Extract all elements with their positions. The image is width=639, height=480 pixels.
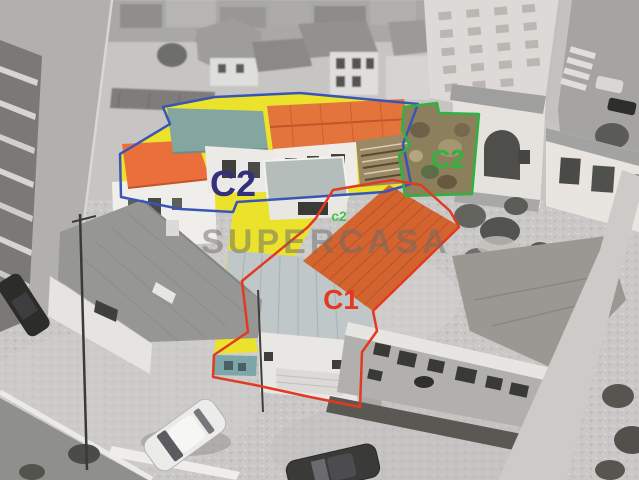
aerial-photo-canvas: C2 C2 c2 C1 SUPERCASA	[0, 0, 639, 480]
arch-opening	[484, 130, 520, 180]
parcel-label-c2-ruin: C2	[431, 144, 464, 174]
parcel-label-c2-main: C2	[210, 163, 256, 204]
parcel-label-c2-marker: c2	[331, 208, 347, 224]
parcel-label-c1: C1	[323, 284, 359, 315]
watermark: SUPERCASA	[201, 223, 450, 261]
teal-roof-house	[167, 108, 268, 153]
aerial-photo: C2 C2 c2 C1 SUPERCASA	[0, 0, 639, 480]
leanto-roof	[213, 355, 257, 376]
